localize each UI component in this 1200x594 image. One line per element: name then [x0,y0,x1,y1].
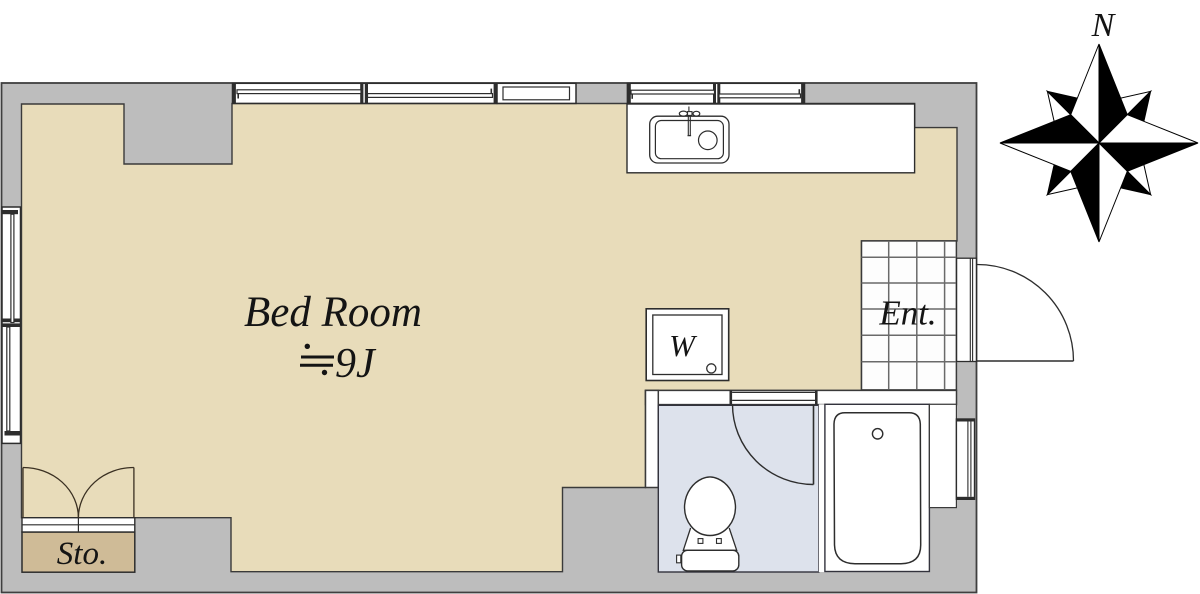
svg-text:W: W [669,328,698,363]
svg-text:Ent.: Ent. [878,294,936,333]
svg-text:Bed Room: Bed Room [244,289,422,336]
svg-text:N: N [1091,7,1117,44]
svg-text:9J: 9J [335,341,377,387]
svg-text:Sto.: Sto. [57,536,107,572]
